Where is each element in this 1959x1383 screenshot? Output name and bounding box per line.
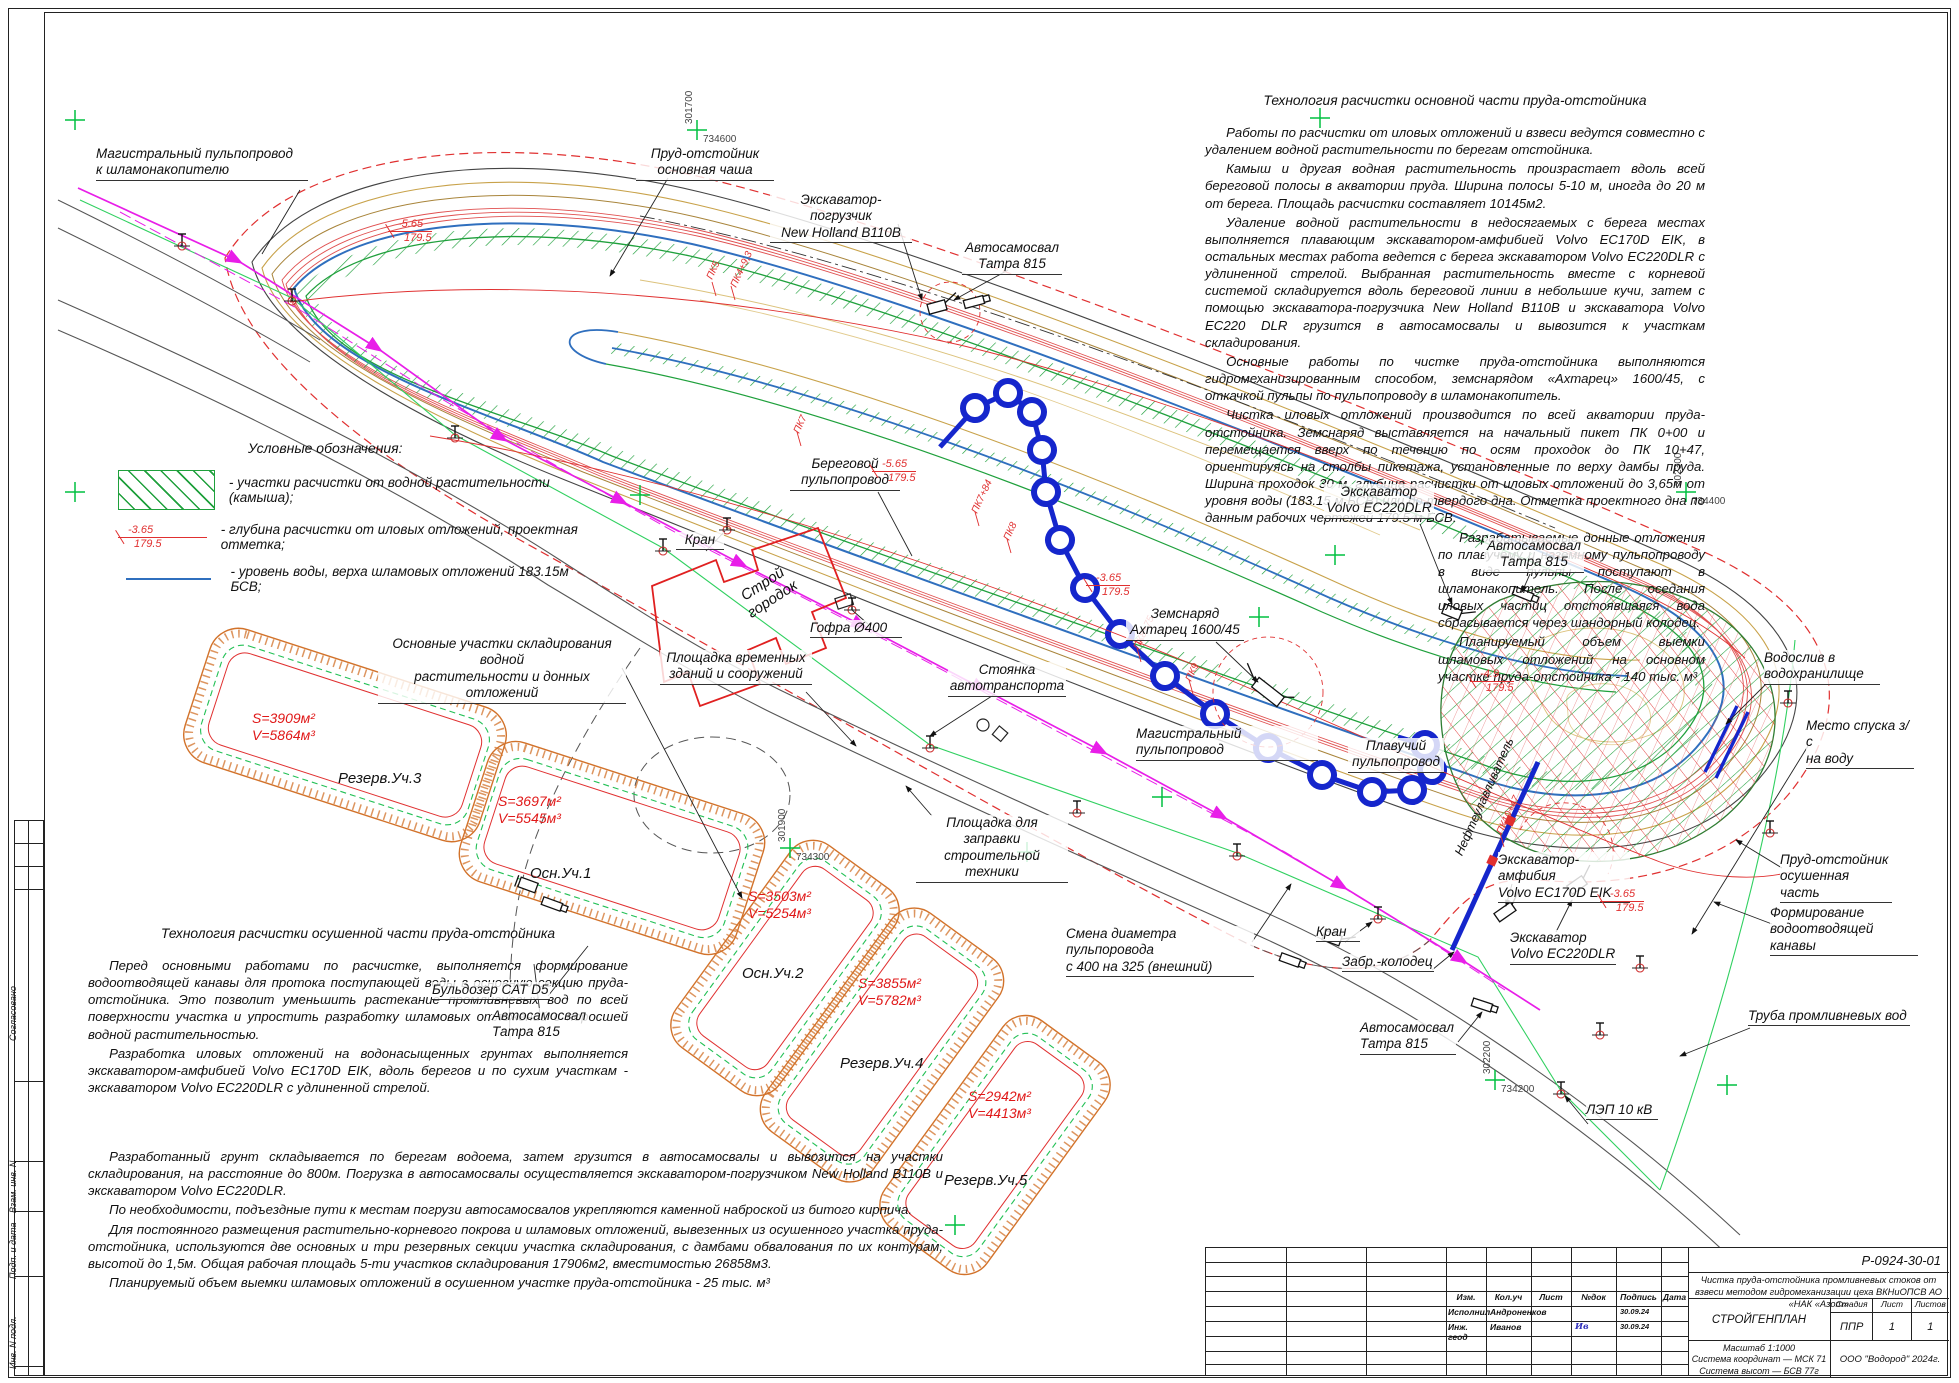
tech-dry-block-2: Разработанный грунт складывается по бере… [88, 1148, 943, 1293]
sheets-label: Листов [1912, 1299, 1949, 1312]
coord-system-note: Система координат — МСК 71 [1688, 1354, 1830, 1365]
strip-inv-podl: Инв. N подл. [8, 1316, 18, 1369]
callout-spillway: Водослив в водохранилище [1764, 650, 1880, 685]
svg-text:ПК8: ПК8 [1002, 520, 1020, 542]
callout-loader-newholland: Экскаватор-погрузчик New Holland B110B [770, 192, 912, 243]
svg-text:734200: 734200 [1501, 1084, 1535, 1095]
callout-vehicle-parking: Стоянка автотранспорта [948, 662, 1066, 697]
svg-text:ПК7+84: ПК7+84 [970, 478, 995, 515]
scale-note: Масштаб 1:1000 [1688, 1343, 1830, 1354]
strip-soglasovano: Согласовано [8, 986, 18, 1041]
legend-item-water: - уровень воды, верха шламовых отложений… [231, 564, 598, 594]
parcel-name-r4: Резерв.Уч.4 [840, 1055, 923, 1072]
stage-value: ППР [1831, 1313, 1873, 1340]
tech-dry-title: Технология расчистки осушенной части пру… [88, 925, 628, 943]
depth-mark-3: -3.65179.5 [1086, 572, 1130, 598]
callout-truck-tatra-bottom: Автосамосвал Татра 815 [1360, 1020, 1456, 1055]
tech-main-p3: Удаление водной растительности в недосяг… [1205, 214, 1705, 351]
sheet-label: Лист [1873, 1299, 1911, 1312]
parcel-sv-o1: S=3697м² V=5545м³ [498, 793, 561, 827]
parcel-sv-r5: S=2942м² V=4413м³ [968, 1088, 1031, 1122]
callout-excavator-ec220-low: Экскаватор Volvo EC220DLR [1510, 930, 1616, 965]
reed-hatch-swatch [118, 470, 215, 510]
sheets-value: 1 [1912, 1321, 1949, 1333]
row2-signature: Ив [1575, 1322, 1620, 1342]
legend-item-depth: - глубина расчистки от иловых отложений,… [221, 522, 598, 552]
parcel-name-r5: Резерв.Уч.5 [944, 1172, 1027, 1189]
callout-excavator-ec220-top: Экскаватор Volvo EC220DLR [1324, 484, 1434, 519]
callout-main-storage-areas: Основные участки складирования водной ра… [378, 636, 626, 704]
tech-main-p4: Основные работы по чистке пруда-отстойни… [1205, 353, 1705, 404]
tech-main-p1: Работы по расчистки от иловых отложений … [1205, 124, 1705, 158]
callout-storm-pipe: Труба промливневых вод [1748, 1008, 1910, 1026]
svg-text:ПК7: ПК7 [792, 413, 810, 435]
tech-main-p5: Чистка иловых отложений производится по … [1205, 406, 1705, 526]
svg-text:301900: 301900 [777, 808, 788, 842]
row2-name: Иванов [1488, 1322, 1575, 1342]
parcel-name-r3: Резерв.Уч.3 [338, 770, 421, 787]
parcel-sv-r4: S=3855м² V=5782м³ [858, 975, 921, 1009]
row1-role: Исполнил [1446, 1307, 1488, 1317]
parcel-sv-o2: S=3503м² V=5254м³ [748, 888, 811, 922]
callout-floating-pipeline: Плавучий пульпопровод [1348, 738, 1444, 773]
strip-vzam-inv: Взам. инв. N [8, 1161, 18, 1213]
legend-title: Условные обозначения: [248, 440, 598, 456]
dump-truck-icon [1471, 998, 1498, 1014]
callout-truck-tatra-top: Автосамосвал Татра 815 [962, 240, 1062, 275]
row2-role: Инж. геод [1446, 1322, 1488, 1342]
stage-label: Стадия [1831, 1299, 1873, 1312]
svg-text:301700: 301700 [684, 90, 695, 124]
col-ndok: №док [1571, 1292, 1616, 1302]
col-list: Лист [1531, 1292, 1571, 1302]
strip-podp-data: Подп. и дата [8, 1223, 18, 1279]
parcel-sv-r3: S=3909м² V=5864м³ [252, 710, 315, 744]
col-koluch: Кол.уч [1486, 1292, 1531, 1302]
tech-main-block: Технология расчистки основной части пруд… [1205, 92, 1705, 687]
callout-drainage-ditch: Формирование водоотводящей канавы [1770, 905, 1918, 956]
svg-text:302200: 302200 [1482, 1040, 1493, 1074]
drawing-name: СТРОЙГЕНПЛАН [1688, 1299, 1831, 1341]
legend-item-reed: - участки расчистки от водной растительн… [229, 475, 598, 505]
organization: ООО "Водород" 2024г. [1831, 1341, 1949, 1377]
tech-dry-p4: По необходимости, подъездные пути к мест… [88, 1201, 943, 1218]
dump-truck-icon [541, 897, 568, 913]
callout-truck-tatra-right: Автосамосвал Татра 815 [1484, 538, 1584, 573]
col-podpis: Подпись [1616, 1292, 1661, 1302]
frame-side-strip: Согласовано Взам. инв. N Подп. и дата Ин… [14, 820, 44, 1376]
drawing-sheet: ПК5 ПК4+9,3 ПК7 ПК7+84 ПК8 ПК8+75 ПК9 ПК… [0, 0, 1959, 1383]
callout-pond-main-bowl: Пруд-отстойник основная чаша [636, 146, 774, 181]
callout-pipeline-diameter-change: Смена диаметра пульпоровода с 400 на 325… [1066, 926, 1254, 977]
col-data: Дата [1661, 1292, 1688, 1302]
svg-text:734300: 734300 [796, 852, 830, 863]
depth-mark-1: -5.65179.5 [388, 218, 432, 244]
callout-launch-site: Место спуска з/с на воду [1806, 718, 1914, 769]
legend: Условные обозначения: - участки расчистк… [118, 440, 598, 606]
row2-date: 30.09.24 [1620, 1322, 1660, 1342]
callout-valve-1: Кран [676, 532, 724, 550]
callout-truck-tatra-left: Автосамосвал Татра 815 [492, 1008, 588, 1041]
tech-dry-p3: Разработанный грунт складывается по бере… [88, 1148, 943, 1199]
dump-truck-icon [963, 294, 990, 308]
callout-main-pipeline-top: Магистральный пульпопровод к шламонакопи… [96, 146, 308, 181]
parcel-name-o1: Осн.Уч.1 [530, 865, 591, 882]
row1-name: Андроненков [1488, 1307, 1575, 1317]
callout-valve-2: Кран [1316, 924, 1360, 942]
tech-dry-p5: Для постоянного размещения растительно-к… [88, 1221, 943, 1272]
callout-dredger: Земснаряд Ахтарец 1600/45 [1126, 606, 1244, 641]
callout-gofra-400: Гофра Ø400 [810, 620, 902, 638]
callout-power-line-10kv: ЛЭП 10 кВ [1586, 1102, 1658, 1120]
tech-dry-p2: Разработка иловых отложений на водонасыщ… [88, 1045, 628, 1096]
tech-dry-p6: Планируемый объем выемки шламовых отложе… [88, 1274, 943, 1291]
dump-truck-icon [1279, 953, 1306, 969]
water-level-symbol [118, 570, 217, 588]
sheet-value: 1 [1873, 1313, 1911, 1340]
callout-main-pipeline-mid: Магистральный пульпопровод [1136, 726, 1318, 761]
project-name: Чистка пруда-отстойника промливневых сто… [1688, 1273, 1949, 1299]
callout-refueling-area: Площадка для заправки строительной техни… [916, 815, 1068, 883]
col-izm: Изм. [1446, 1292, 1486, 1302]
depth-mark-5: -3.65179.5 [1600, 888, 1644, 914]
depth-mark-symbol: -3.65 179.5 [118, 524, 207, 550]
callout-temp-buildings-area: Площадка временных зданий и сооружений [660, 650, 812, 685]
row1-date: 30.09.24 [1620, 1307, 1660, 1317]
parcel-name-o2: Осн.Уч.2 [742, 965, 803, 982]
title-block: Изм. Кол.уч Лист №док Подпись Дата Испол… [1205, 1247, 1948, 1376]
depth-mark-2: -5.65179.5 [872, 458, 916, 484]
svg-text:734600: 734600 [703, 134, 737, 145]
height-system-note: Система высот — БСВ 77г [1688, 1366, 1830, 1377]
doc-number: Р-0924-30-01 [1688, 1248, 1949, 1273]
callout-intake-well: Забр.-колодец [1342, 954, 1434, 972]
callout-pond-drained-part: Пруд-отстойник осушенная часть [1780, 852, 1892, 903]
depth-mark-4: -4.9179.5 [1470, 668, 1514, 694]
tech-main-p2: Камыш и другая водная растительность про… [1205, 160, 1705, 211]
callout-bulldozer-cat: Бульдозер CAT D5 [432, 982, 550, 1000]
tech-main-title: Технология расчистки основной части пруд… [1205, 92, 1705, 110]
